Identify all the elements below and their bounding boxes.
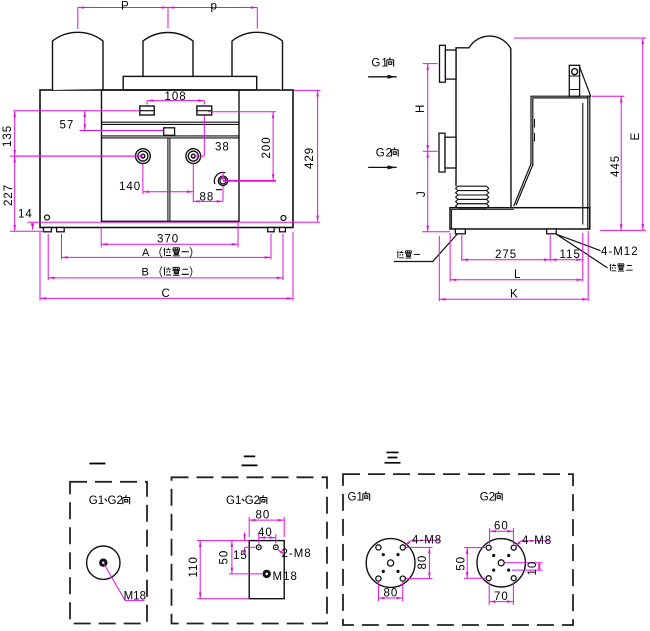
svg-text:G2: G2 — [376, 148, 393, 160]
svg-text:227: 227 — [3, 184, 15, 206]
svg-text:108: 108 — [165, 91, 187, 103]
svg-text:38: 38 — [215, 142, 230, 154]
svg-text:G2: G2 — [480, 492, 495, 504]
svg-text:L: L — [514, 269, 521, 281]
svg-text:4-M12: 4-M12 — [601, 246, 639, 258]
svg-text:G1: G1 — [89, 495, 104, 507]
svg-text:115: 115 — [560, 249, 581, 261]
svg-text:275: 275 — [495, 249, 517, 261]
svg-text:C: C — [162, 288, 171, 300]
svg-text:E: E — [630, 132, 642, 141]
svg-text:110: 110 — [188, 556, 200, 577]
svg-text:40: 40 — [258, 527, 273, 539]
svg-text:70: 70 — [494, 591, 509, 603]
svg-text:88: 88 — [200, 192, 215, 204]
svg-text:J: J — [416, 190, 428, 197]
svg-text:）: ） — [189, 266, 200, 279]
svg-text:2-M8: 2-M8 — [282, 548, 312, 560]
svg-text:60: 60 — [494, 521, 509, 533]
svg-text:M18: M18 — [273, 571, 298, 583]
svg-text:4-M8: 4-M8 — [412, 535, 442, 547]
svg-text:P: P — [121, 1, 130, 13]
svg-text:G1: G1 — [371, 58, 388, 70]
svg-text:）: ） — [189, 246, 200, 259]
svg-text:H: H — [415, 104, 427, 113]
svg-text:G1: G1 — [226, 495, 241, 507]
svg-text:10: 10 — [527, 561, 539, 576]
svg-text:50: 50 — [456, 556, 468, 571]
svg-text:G1: G1 — [348, 492, 363, 504]
svg-text:p: p — [211, 1, 218, 13]
svg-text:G2: G2 — [245, 495, 260, 507]
svg-text:80: 80 — [417, 555, 429, 570]
svg-text:15: 15 — [233, 550, 248, 562]
svg-text:429: 429 — [304, 147, 316, 169]
svg-text:57: 57 — [60, 120, 75, 132]
svg-text:135: 135 — [2, 125, 14, 147]
svg-text:200: 200 — [261, 136, 273, 158]
svg-text:14: 14 — [18, 209, 33, 221]
svg-text:K: K — [510, 289, 519, 301]
svg-text:4-M8: 4-M8 — [522, 535, 552, 547]
svg-text:B （: B （ — [142, 266, 163, 279]
svg-text:M18: M18 — [124, 591, 146, 603]
svg-text:445: 445 — [610, 155, 622, 177]
svg-text:370: 370 — [157, 234, 179, 246]
svg-text:G2: G2 — [108, 495, 123, 507]
svg-text:A （: A （ — [142, 246, 163, 259]
svg-text:140: 140 — [119, 181, 141, 193]
svg-text:50: 50 — [219, 550, 231, 565]
svg-text:80: 80 — [256, 510, 271, 522]
svg-text:80: 80 — [384, 588, 399, 600]
